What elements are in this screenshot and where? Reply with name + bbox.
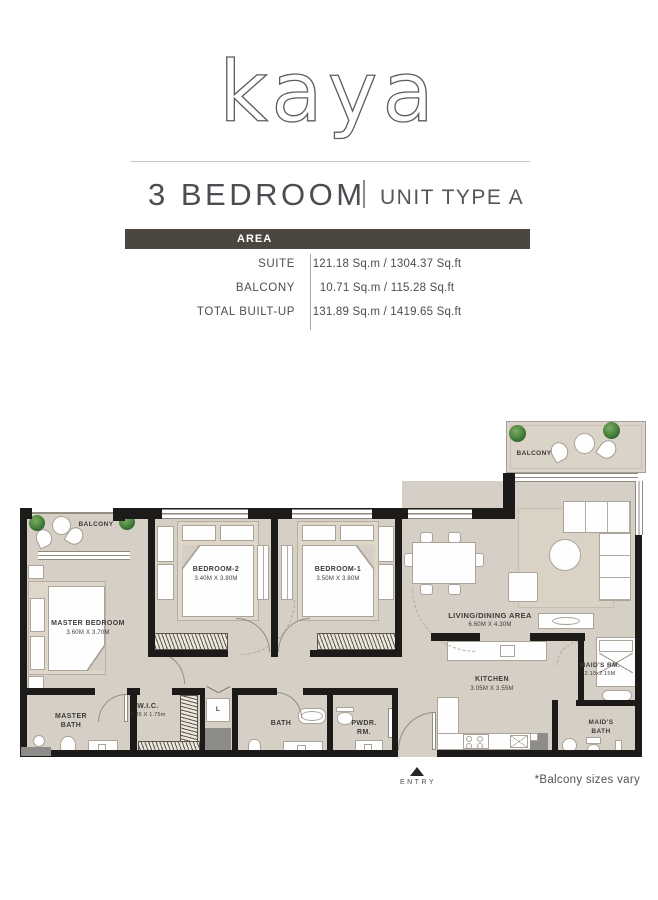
closet-icon: [157, 526, 174, 562]
plant-icon: [509, 425, 526, 442]
balcony-footnote: *Balcony sizes vary: [460, 774, 640, 786]
room-dims: 3.40M X 3.80M: [176, 576, 256, 582]
sliding-door: [38, 551, 130, 560]
wall-segment: [271, 519, 278, 657]
wall-segment: [172, 688, 203, 695]
shaft: [205, 728, 231, 750]
area-table-divider: [310, 254, 311, 330]
header-divider-line: [130, 161, 530, 162]
pillow-icon: [340, 525, 374, 541]
room-label: PWDR. RM.: [346, 719, 382, 737]
sink-icon: [510, 735, 528, 748]
room-label: MAID'S RM.: [570, 661, 630, 670]
shaft-detail: [530, 733, 538, 741]
room-label: BALCONY: [68, 520, 124, 529]
wall-segment: [327, 688, 333, 757]
window: [162, 509, 248, 519]
room-dims: 2.35 X 1.75m: [122, 712, 174, 718]
pillow-icon: [30, 636, 45, 670]
room-label: BALCONY: [506, 449, 562, 458]
wall-segment: [392, 688, 398, 757]
area-row-label: SUITE: [125, 258, 295, 270]
page-title: 3 BEDROOM: [148, 177, 366, 213]
sofa-icon: [599, 533, 631, 601]
wall-segment: [503, 473, 515, 519]
sofa-icon: [563, 501, 631, 533]
area-row-value: 121.18 Sq.m / 1304.37 Sq.ft: [312, 258, 462, 270]
wall-segment: [20, 508, 32, 519]
door-leaf: [432, 712, 436, 750]
wall-segment: [232, 688, 277, 695]
wall-segment: [20, 750, 398, 757]
room-label: LIVING/DINING AREA: [430, 611, 550, 620]
wall-segment: [431, 633, 480, 641]
wall-segment: [148, 650, 228, 657]
area-row-label: TOTAL BUILT-UP: [125, 306, 295, 318]
area-row-value: 131.89 Sq.m / 1419.65 Sq.ft: [312, 306, 462, 318]
wall-segment: [303, 688, 398, 695]
room-label: KITCHEN: [452, 675, 532, 684]
window: [635, 481, 643, 535]
wall-segment: [148, 513, 155, 652]
bed-fold-icon: [87, 645, 105, 671]
room-dims: 3.50M X 3.80M: [298, 576, 378, 582]
wall-segment: [310, 650, 402, 657]
wall-segment: [635, 535, 642, 757]
balcony-table-icon: [574, 433, 595, 454]
entry-arrow-icon: [410, 767, 424, 776]
sliding-door: [515, 473, 638, 482]
room-label: MAID'S BATH: [583, 718, 619, 736]
closet-icon: [378, 526, 394, 562]
brand-logo: kaya: [0, 48, 658, 136]
dining-table-icon: [412, 542, 476, 584]
wall-segment: [130, 688, 137, 757]
pillow-icon: [182, 525, 216, 541]
pillow-icon: [302, 525, 336, 541]
area-row-label: BALCONY: [125, 282, 295, 294]
wall-segment: [552, 700, 558, 757]
wall-segment: [437, 750, 642, 757]
room-label: BEDROOM-1: [288, 565, 388, 574]
room-label: BATH: [259, 719, 303, 728]
room-dims: 2.10x2.15M: [572, 671, 628, 677]
room-label: MASTER BATH: [48, 712, 94, 730]
bathtub-icon: [301, 711, 323, 721]
stove-burner-icon: [466, 736, 472, 742]
plant-icon: [603, 422, 620, 439]
room-label: W.I.C.: [126, 702, 170, 711]
window: [292, 509, 372, 519]
entry-label: ENTRY: [393, 779, 443, 786]
area-table-header: AREA: [125, 229, 530, 249]
toilet-icon: [586, 737, 601, 744]
armchair-icon: [508, 572, 538, 602]
wardrobe-hatch: [152, 633, 228, 650]
sink-icon: [500, 645, 515, 657]
room-dims: 3.05M X 3.55M: [452, 686, 532, 692]
window: [408, 509, 472, 519]
coffee-table-icon: [549, 539, 581, 571]
room-label: MASTER BEDROOM: [38, 619, 138, 628]
room-dims: 6.60M X 4.30M: [440, 622, 540, 628]
stove-burner-icon: [477, 736, 483, 742]
wardrobe-hatch: [180, 695, 198, 743]
wall-segment: [20, 508, 27, 757]
wall-segment: [530, 633, 585, 641]
nightstand-icon: [28, 565, 44, 579]
room-dims: 3.60M X 3.70M: [48, 630, 128, 636]
wall-segment: [232, 688, 238, 757]
wall-segment: [27, 688, 95, 695]
room-label: L: [206, 698, 230, 722]
wardrobe-hatch: [317, 633, 398, 650]
stove-burner-icon: [477, 743, 483, 749]
area-table-header-label: AREA: [237, 233, 272, 245]
title-divider: [363, 180, 365, 208]
tv-console-detail: [552, 617, 580, 625]
stove-burner-icon: [466, 743, 472, 749]
brochure-page: kaya 3 BEDROOM UNIT TYPE A AREA SUITE 12…: [0, 0, 658, 900]
wall-segment: [395, 519, 402, 650]
shower-ledge: [21, 747, 51, 756]
pillow-icon: [220, 525, 254, 541]
room-label: BEDROOM-2: [166, 565, 266, 574]
pillow-icon: [599, 640, 633, 652]
area-row-value: 10.71 Sq.m / 115.28 Sq.ft: [312, 282, 462, 294]
page-subtitle: UNIT TYPE A: [380, 186, 524, 210]
wall-segment: [576, 700, 642, 706]
